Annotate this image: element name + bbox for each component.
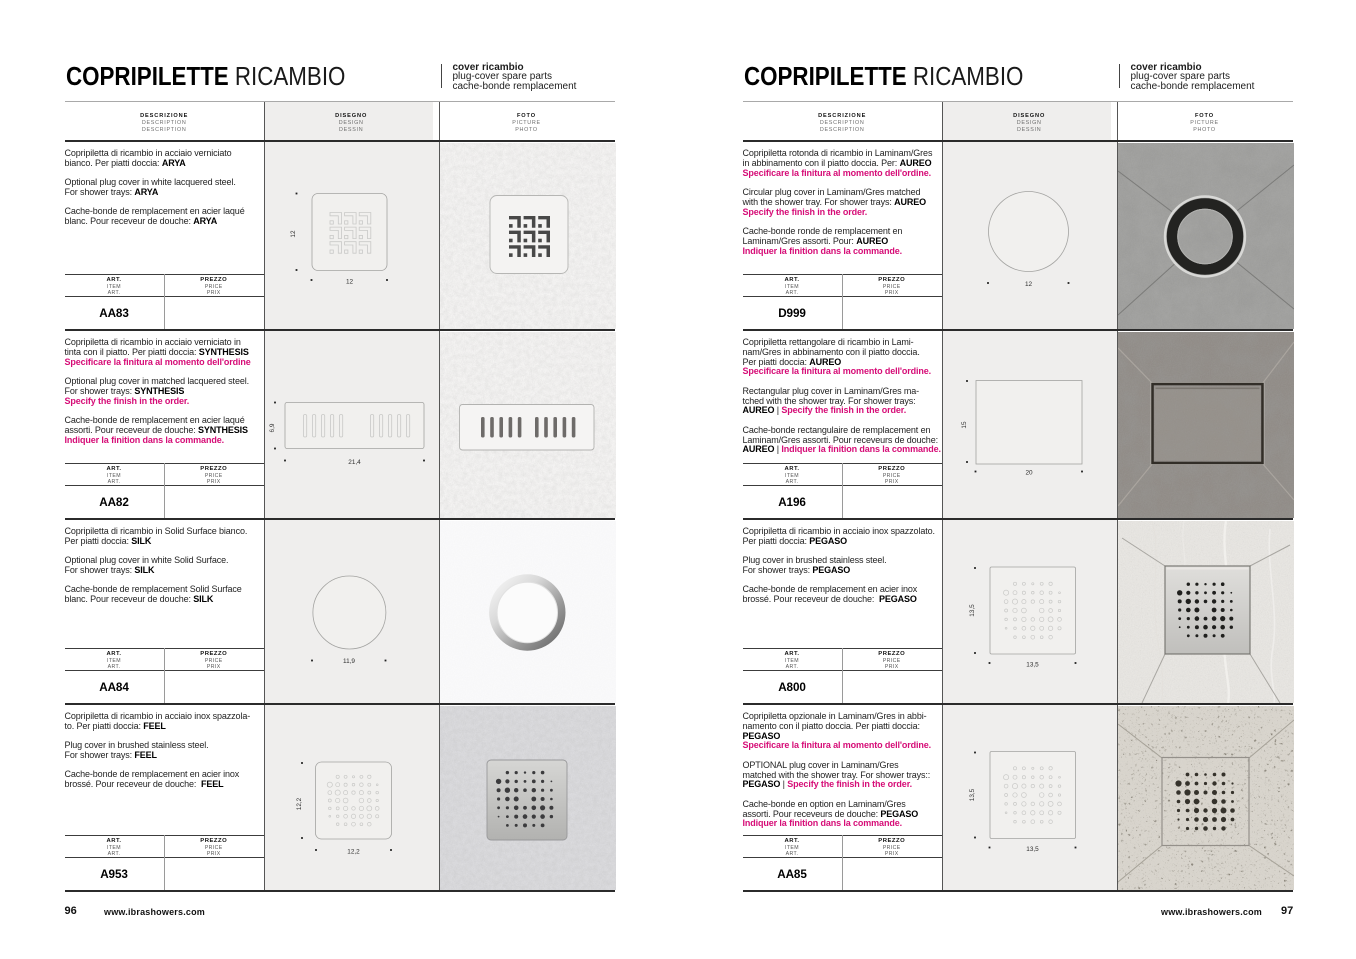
svg-text:15: 15 xyxy=(961,421,968,429)
svg-text:6,9: 6,9 xyxy=(269,423,276,432)
svg-text:13,5: 13,5 xyxy=(1026,846,1039,853)
svg-text:13,5: 13,5 xyxy=(969,788,976,801)
svg-text:13,5: 13,5 xyxy=(969,603,976,616)
svg-text:12: 12 xyxy=(290,230,297,238)
svg-text:21,4: 21,4 xyxy=(348,459,361,466)
svg-text:20: 20 xyxy=(1025,469,1033,476)
svg-text:12,2: 12,2 xyxy=(347,848,360,855)
svg-text:12: 12 xyxy=(346,278,354,285)
svg-text:13,5: 13,5 xyxy=(1026,661,1039,668)
svg-text:12: 12 xyxy=(1025,281,1033,288)
svg-text:11,9: 11,9 xyxy=(343,658,355,665)
svg-text:12,2: 12,2 xyxy=(296,797,303,810)
